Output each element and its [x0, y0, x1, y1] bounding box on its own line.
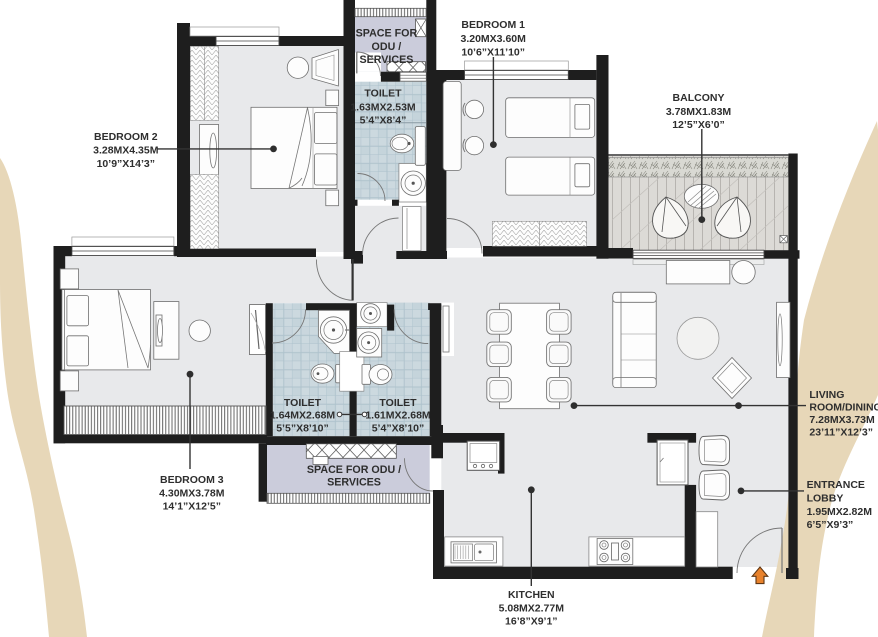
svg-text:SERVICES: SERVICES — [359, 54, 413, 66]
svg-text:1.61MX2.68M: 1.61MX2.68M — [365, 410, 431, 422]
svg-text:BEDROOM 2: BEDROOM 2 — [94, 131, 158, 143]
svg-text:5.08MX2.77M: 5.08MX2.77M — [499, 603, 565, 615]
svg-text:23’11”X12’3”: 23’11”X12’3” — [809, 427, 873, 439]
svg-text:4.30MX3.78M: 4.30MX3.78M — [159, 488, 225, 500]
svg-text:ENTRANCE: ENTRANCE — [807, 479, 865, 491]
svg-text:10’6”X11’10”: 10’6”X11’10” — [461, 47, 525, 59]
svg-text:5’4”X8’10”: 5’4”X8’10” — [372, 423, 425, 435]
svg-text:1.63MX2.53M: 1.63MX2.53M — [350, 102, 416, 114]
svg-text:1.64MX2.68M: 1.64MX2.68M — [270, 410, 336, 422]
svg-text:BALCONY: BALCONY — [673, 92, 725, 104]
svg-text:1.95MX2.82M: 1.95MX2.82M — [807, 506, 873, 518]
svg-text:3.20MX3.60M: 3.20MX3.60M — [461, 33, 527, 45]
svg-text:LIVING: LIVING — [809, 389, 844, 401]
svg-text:BEDROOM 3: BEDROOM 3 — [160, 474, 224, 486]
svg-text:TOILET: TOILET — [364, 88, 402, 100]
svg-text:14’1”X12’5”: 14’1”X12’5” — [163, 501, 221, 513]
svg-text:5’4”X8’4”: 5’4”X8’4” — [360, 115, 407, 127]
svg-text:3.78MX1.83M: 3.78MX1.83M — [666, 106, 732, 118]
svg-text:ROOM/DINING: ROOM/DINING — [809, 402, 878, 414]
svg-text:SPACE FOR ODU /: SPACE FOR ODU / — [307, 464, 401, 476]
svg-text:ODU /: ODU / — [372, 41, 402, 53]
svg-text:LOBBY: LOBBY — [807, 493, 844, 505]
svg-text:5’5”X8’10”: 5’5”X8’10” — [276, 423, 329, 435]
svg-text:KITCHEN: KITCHEN — [508, 589, 555, 601]
svg-text:3.28MX4.35M: 3.28MX4.35M — [93, 145, 159, 157]
svg-text:TOILET: TOILET — [379, 397, 417, 409]
svg-text:SERVICES: SERVICES — [327, 477, 381, 489]
svg-text:7.28MX3.73M: 7.28MX3.73M — [809, 414, 875, 426]
svg-text:6’5”X9’3”: 6’5”X9’3” — [807, 519, 854, 531]
svg-text:12’5”X6’0”: 12’5”X6’0” — [672, 119, 725, 131]
svg-text:BEDROOM 1: BEDROOM 1 — [461, 19, 525, 31]
svg-text:10’9”X14’3”: 10’9”X14’3” — [97, 158, 155, 170]
svg-text:SPACE FOR: SPACE FOR — [356, 28, 418, 40]
svg-text:16’8”X9’1”: 16’8”X9’1” — [505, 616, 558, 628]
svg-text:TOILET: TOILET — [284, 397, 322, 409]
